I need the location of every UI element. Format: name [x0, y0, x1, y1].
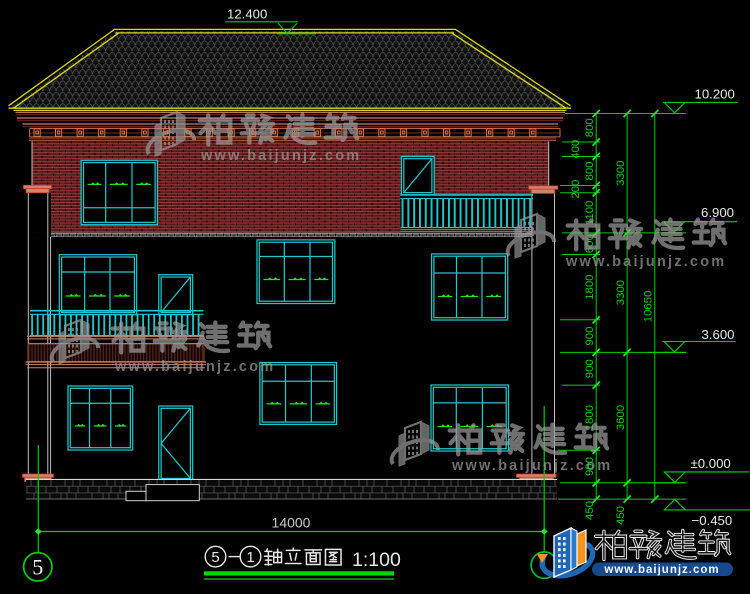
- svg-text:450: 450: [584, 501, 596, 520]
- svg-text:www.baijunjz.com: www.baijunjz.com: [114, 359, 275, 375]
- svg-text:www.baijunjz.com: www.baijunjz.com: [565, 254, 726, 270]
- svg-text:3300: 3300: [615, 280, 627, 305]
- svg-text:400: 400: [570, 140, 582, 159]
- svg-text:5: 5: [32, 555, 43, 580]
- svg-text:3300: 3300: [615, 161, 627, 186]
- svg-text:3600: 3600: [615, 405, 627, 430]
- svg-text:1: 1: [246, 549, 254, 566]
- svg-text:3.600: 3.600: [702, 327, 735, 342]
- svg-text:www.baijunjz.com: www.baijunjz.com: [451, 458, 612, 474]
- svg-text:6.900: 6.900: [701, 205, 734, 220]
- svg-text:www.baijunjz.com: www.baijunjz.com: [603, 564, 719, 576]
- svg-text:10.200: 10.200: [695, 87, 735, 102]
- svg-text:200: 200: [570, 180, 582, 199]
- svg-text:800: 800: [584, 161, 596, 180]
- svg-text:14000: 14000: [272, 515, 311, 531]
- svg-text:10650: 10650: [643, 291, 655, 323]
- svg-text:12.400: 12.400: [227, 7, 267, 22]
- svg-text:900: 900: [584, 359, 596, 378]
- svg-text:800: 800: [584, 118, 596, 137]
- svg-text:±0.000: ±0.000: [691, 456, 731, 471]
- svg-text:1:100: 1:100: [352, 549, 401, 571]
- svg-text:5: 5: [211, 549, 219, 566]
- svg-text:450: 450: [615, 506, 627, 525]
- svg-text:1800: 1800: [584, 274, 596, 299]
- svg-text:900: 900: [584, 327, 596, 346]
- svg-text:www.baijunjz.com: www.baijunjz.com: [200, 148, 361, 164]
- svg-text:−0.450: −0.450: [692, 513, 733, 528]
